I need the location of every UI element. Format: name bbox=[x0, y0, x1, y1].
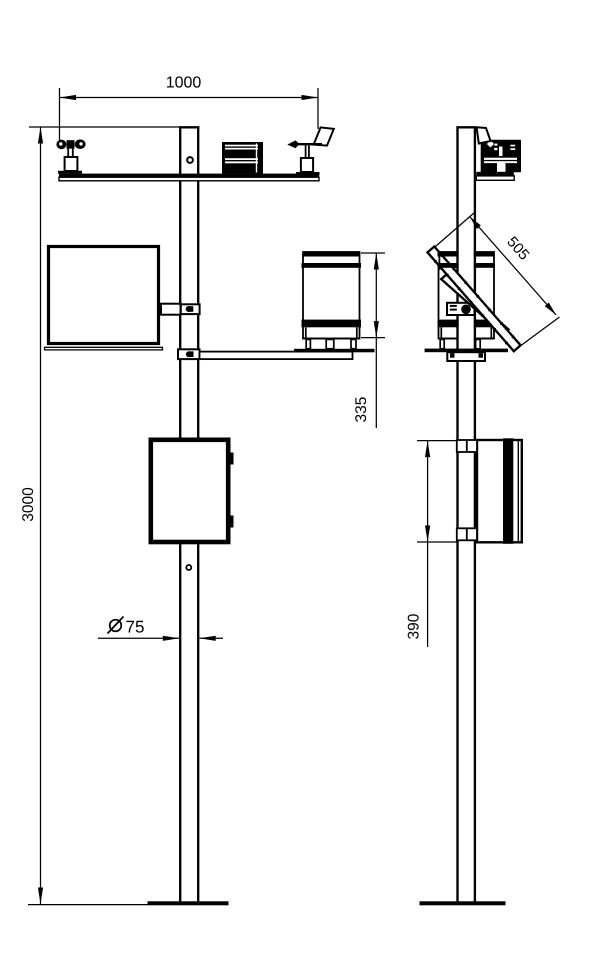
svg-text:3000: 3000 bbox=[20, 487, 37, 522]
svg-text:75: 75 bbox=[126, 618, 145, 637]
svg-text:335: 335 bbox=[353, 397, 370, 423]
svg-text:1000: 1000 bbox=[166, 75, 202, 92]
svg-text:390: 390 bbox=[406, 613, 423, 639]
